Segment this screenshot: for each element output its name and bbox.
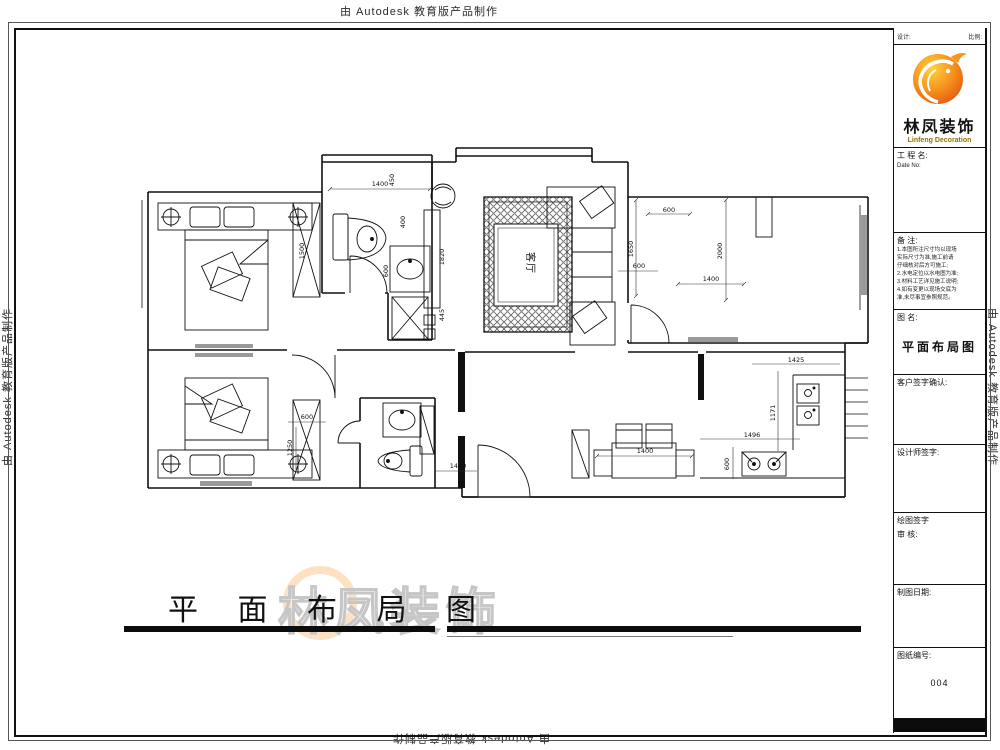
date-section: 制图日期: [894,585,985,648]
phoenix-logo-icon [906,49,974,107]
header-right-label: 比例: [968,32,982,41]
bed-bottom-left [158,378,312,478]
dim-label: 1171 [769,405,777,422]
header-left-label: 设计: [897,32,911,41]
title-block: 设计: 比例: 林凤装饰 Linfeng Decoration [893,28,985,733]
drawing-name-label: 图 名: [897,312,982,323]
dim-label: 400 [399,216,407,228]
entry-plant [431,184,455,208]
dim-label: 1496 [744,431,761,439]
drawing-name-section: 图 名: 平面布局图 [894,310,985,375]
bathroom-2 [338,403,434,476]
dim-label: 600 [663,206,675,214]
client-sign-label: 客户签字确认: [897,377,982,388]
dim-label: 1250 [286,440,294,457]
dim-label: 1400 [450,462,467,470]
brand-name-cn: 林凤装饰 [897,113,982,137]
project-name-section: 工 程 名: Date No: [894,148,985,233]
drawing-name-value: 平面布局图 [894,338,985,355]
brand-logo-section: 林凤装饰 Linfeng Decoration [894,45,985,148]
review-label: 审 核: [897,529,982,540]
toilet-top [333,214,386,260]
date-label: 制图日期: [897,587,982,598]
wardrobe-bottom-left [293,400,320,480]
dim-label: 600 [382,265,390,277]
title-block-header: 设计: 比例: [894,28,985,45]
title-block-footer-bar [894,719,985,732]
drawing-sheet: 由 Autodesk 教育版产品制作 由 Autodesk 教育版产品制作 由 … [0,0,1000,750]
sheet-number-value: 004 [894,678,985,688]
note-line: 2.水电定位以水电图为准; [897,270,982,278]
dim-label: 1500 [298,243,306,260]
dim-label: 1425 [788,356,805,364]
note-line: 仔细核对后方可施工; [897,262,982,270]
dim-label: 600 [301,413,313,421]
dining-set [572,424,694,478]
project-sub-label: Date No: [897,163,982,169]
room-label-living: 客厅 [524,252,537,274]
dim-label: 600 [633,262,645,270]
draft-sign-label: 绘图签字 [897,515,982,526]
note-line: 1.本图所注尺寸均以现场 [897,246,982,254]
furniture [158,184,845,497]
bed-top-left [158,203,312,330]
designer-sign-label: 设计师签字: [897,447,982,458]
note-line: 实际尺寸为准,施工前请 [897,254,982,262]
bedroom2-door [292,355,335,398]
client-sign-section: 客户签字确认: [894,375,985,445]
dim-label: 1400 [703,275,720,283]
sheet-number-label: 图纸编号: [897,650,982,661]
note-line: 准,未尽事宜参照规范。 [897,294,982,302]
dim-label: 1400 [637,447,654,455]
page-title: 平 面 布 局 图 [168,585,492,629]
dim-label: 1820 [438,249,446,266]
notes-label: 备 注: [897,235,982,246]
sheet-number-section: 图纸编号: 004 [894,648,985,719]
dim-label: 1400 [372,180,389,188]
brand-name-en: Linfeng Decoration [897,137,982,144]
dim-label: 445 [438,309,446,321]
title-underline-thin [447,636,733,637]
note-line: 4.如有变更以现场交底为 [897,286,982,294]
dim-label: 600 [723,458,731,470]
kitchen [700,375,845,478]
right-bedroom [631,197,772,343]
note-line: 3.材料工艺详见施工说明; [897,278,982,286]
draft-review-section: 绘图签字 审 核: [894,513,985,585]
notes-section: 备 注: 1.本图所注尺寸均以现场 实际尺寸为准,施工前请 仔细核对后方可施工;… [894,233,985,310]
title-underline-right [447,626,861,632]
dim-label: 1650 [627,241,635,258]
designer-sign-section: 设计师签字: [894,445,985,513]
project-name-label: 工 程 名: [897,150,982,161]
solid-wall-segments [458,352,704,488]
dim-label: 450 [388,174,396,186]
dim-label: 2000 [716,243,724,260]
entry-door [478,445,530,497]
title-underline-left [124,626,435,632]
